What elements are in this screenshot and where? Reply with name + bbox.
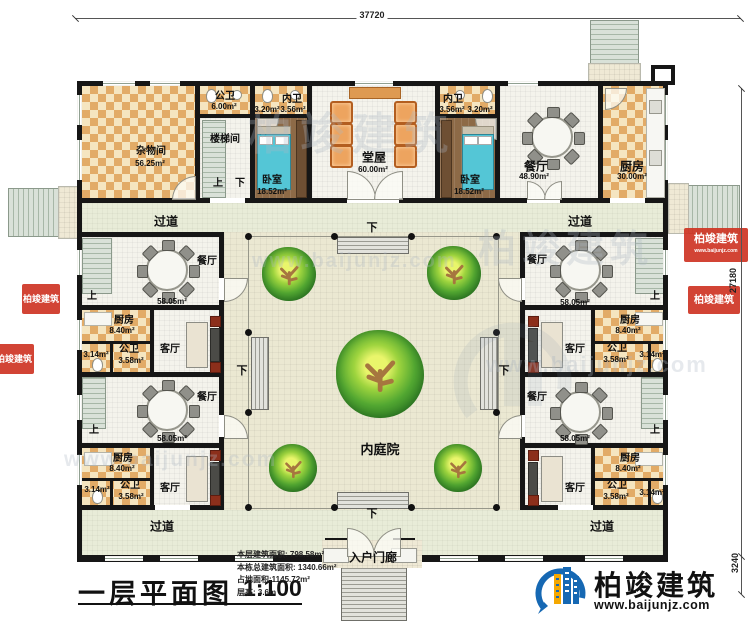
- stamp-text: 柏竣建筑: [0, 354, 32, 364]
- wall: [82, 341, 150, 344]
- dimension-right-lower-value: 3240: [730, 553, 740, 573]
- column: [245, 329, 252, 336]
- wall: [197, 114, 253, 118]
- column: [493, 329, 500, 336]
- dimension-line-top: [75, 18, 741, 19]
- stairs-ul: [82, 238, 112, 294]
- storey-height: 层高: 3.6m: [237, 587, 337, 600]
- sink-icon: [649, 100, 662, 114]
- wall: [520, 505, 558, 510]
- side-table: [210, 362, 221, 373]
- room-label: 公卫: [119, 345, 139, 356]
- wall: [219, 232, 224, 278]
- column: [493, 409, 500, 416]
- wardrobe: [296, 120, 307, 198]
- up-label: 上: [213, 179, 223, 190]
- corridor-label: 过道: [568, 216, 592, 229]
- stairs-landing-left: [58, 186, 79, 239]
- wall: [150, 448, 154, 505]
- down-label: 下: [367, 223, 378, 235]
- room-area: 56.25m²: [135, 160, 165, 168]
- column: [408, 233, 415, 240]
- room-area: 6.00m²: [211, 103, 236, 111]
- window: [663, 455, 668, 485]
- chair-icon: [330, 101, 353, 124]
- chair-icon: [550, 407, 561, 420]
- room-area: 3.14m²: [83, 351, 108, 359]
- window: [663, 320, 668, 350]
- wall: [435, 81, 440, 198]
- chair-icon: [330, 123, 353, 146]
- tv-cabinet: [528, 328, 538, 362]
- room-label: 杂物间: [136, 147, 166, 158]
- wall: [307, 81, 312, 198]
- room-area: 8.40m²: [109, 465, 134, 473]
- window: [585, 556, 623, 561]
- window: [77, 140, 82, 180]
- column: [331, 233, 338, 240]
- wall: [150, 310, 154, 372]
- room-label: 厨房: [620, 454, 640, 465]
- wall: [77, 372, 224, 377]
- room-label: 餐厅: [197, 393, 217, 404]
- wall: [399, 198, 527, 203]
- room-area: 3.56m²: [439, 106, 464, 114]
- wall: [110, 344, 113, 372]
- toilet-icon: [92, 358, 103, 372]
- corridor-label: 过道: [590, 521, 614, 534]
- window: [508, 81, 538, 86]
- window: [160, 556, 198, 561]
- window: [77, 455, 82, 485]
- column: [245, 504, 252, 511]
- sofa: [186, 322, 208, 368]
- pillow: [464, 136, 478, 145]
- up-label: 上: [650, 292, 660, 303]
- toilet-icon: [262, 89, 273, 103]
- storage-floor: [82, 86, 195, 198]
- corridor-label: 过道: [150, 521, 174, 534]
- stairs-lr: [641, 377, 665, 429]
- side-table: [528, 450, 539, 461]
- room-label: 餐厅: [197, 257, 217, 268]
- stove-icon: [649, 150, 662, 166]
- wall: [110, 481, 113, 505]
- pillow: [259, 136, 273, 145]
- courtyard-step-bottom: [337, 492, 409, 509]
- page-title: 一层平面图: [78, 572, 233, 611]
- land-area: 占地面积:1145.72m²: [237, 574, 337, 587]
- stairs-landing-top: [588, 63, 641, 83]
- room-label: 餐厅: [527, 393, 547, 404]
- wall: [520, 232, 525, 278]
- tv-cabinet: [210, 462, 220, 496]
- window: [77, 395, 82, 420]
- sofa: [186, 456, 208, 502]
- room-label: 厨房: [114, 316, 134, 327]
- tree: [269, 444, 317, 492]
- stamp-text: 柏竣建筑: [23, 294, 59, 304]
- chair-icon: [394, 145, 417, 168]
- chair-icon: [394, 123, 417, 146]
- brand-url: www.baijunjz.com: [594, 598, 710, 612]
- window: [77, 250, 82, 275]
- tree-branches-icon: [352, 346, 408, 402]
- room-area: 3.58m²: [603, 493, 628, 501]
- courtyard-step-right: [480, 337, 498, 410]
- dimension-top-value: 37720: [356, 10, 387, 20]
- room-label: 餐厅: [527, 256, 547, 267]
- total-area: 本栋总建筑面积: 1340.66m²: [237, 562, 337, 575]
- window: [150, 81, 180, 86]
- watermark-stamp: 柏竣建筑: [0, 344, 34, 374]
- room-label: 厨房: [620, 316, 640, 327]
- room-label: 公卫: [607, 481, 627, 492]
- window: [663, 395, 668, 420]
- room-area: 3.58m²: [603, 356, 628, 364]
- chair-icon: [189, 405, 200, 418]
- column: [493, 504, 500, 511]
- tree: [427, 246, 481, 300]
- up-label: 上: [87, 292, 97, 303]
- tv-cabinet: [528, 462, 538, 496]
- column: [493, 233, 500, 240]
- round-dining-table: [135, 238, 199, 302]
- kitchen-counter: [84, 312, 112, 326]
- chair-icon: [574, 132, 585, 145]
- wall: [77, 232, 224, 237]
- down-label: 下: [237, 366, 248, 378]
- room-area: 3.20m²: [467, 106, 492, 114]
- room-label: 内卫: [282, 95, 302, 106]
- room-area: 3.20m²: [254, 106, 279, 114]
- room-label: 客厅: [160, 345, 180, 356]
- toilet-icon: [482, 89, 493, 103]
- external-stairs-left: [8, 188, 60, 237]
- room-area: 3.14m²: [639, 489, 664, 497]
- chair-icon: [162, 380, 175, 391]
- external-stairs-right: [687, 185, 740, 234]
- wall: [520, 300, 525, 415]
- chair-icon: [547, 159, 560, 170]
- courtyard-step-top: [337, 237, 409, 254]
- wall: [560, 198, 610, 203]
- side-table: [528, 316, 539, 327]
- wall: [591, 448, 595, 505]
- watermark-stamp: 柏竣建筑 www.baijunjz.com: [684, 228, 748, 262]
- tree-branches-icon: [278, 453, 309, 484]
- column: [245, 233, 252, 240]
- chair-icon: [137, 265, 148, 278]
- tree: [434, 444, 482, 492]
- room-label: 公卫: [120, 481, 140, 492]
- room-label: 客厅: [160, 484, 180, 495]
- courtyard-label: 内庭院: [360, 443, 399, 457]
- column: [408, 504, 415, 511]
- room-label: 卧室: [262, 176, 282, 187]
- up-label: 上: [650, 426, 660, 437]
- wall-notch: [651, 65, 675, 85]
- window: [663, 250, 668, 275]
- room-area: 3.56m²: [280, 106, 305, 114]
- down-label: 下: [367, 509, 378, 521]
- tree-branches-icon: [272, 257, 307, 292]
- up-label: 上: [89, 426, 99, 437]
- down-label: 下: [235, 179, 245, 190]
- corridor-label: 过道: [154, 216, 178, 229]
- room-area: 30.00m²: [617, 173, 647, 181]
- stamp-url: www.baijunjz.com: [694, 245, 737, 257]
- pillow: [478, 136, 492, 145]
- room-area: 3.58m²: [118, 493, 143, 501]
- window: [77, 320, 82, 350]
- column: [245, 409, 252, 416]
- stairs-ll: [82, 377, 106, 429]
- external-stairs-top: [590, 20, 639, 65]
- tree: [262, 247, 316, 301]
- dimension-line-right: [741, 88, 742, 594]
- column: [331, 504, 338, 511]
- down-label: 下: [499, 366, 510, 378]
- round-dining-table: [135, 378, 199, 442]
- window: [103, 81, 135, 86]
- room-area: 58.05m²: [157, 298, 187, 306]
- porch-label: 入户门廊: [349, 552, 397, 565]
- room-area: 58.05m²: [157, 435, 187, 443]
- chair-icon: [575, 240, 588, 251]
- stairs-landing-right: [668, 183, 689, 234]
- chair-icon: [550, 265, 561, 278]
- round-dining-table: [548, 238, 612, 302]
- wardrobe: [441, 120, 452, 198]
- room-area: 48.90m²: [519, 173, 549, 181]
- watermark-stamp: 柏竣建筑: [22, 284, 60, 314]
- toilet-icon: [652, 358, 663, 372]
- altar-table: [349, 87, 401, 99]
- chair-icon: [522, 132, 533, 145]
- wall: [245, 198, 347, 203]
- chair-icon: [394, 101, 417, 124]
- floor-plan-canvas: 杂物间 56.25m² 公卫 6.00m² 楼梯间 上 下 内卫 3.20m² …: [0, 0, 750, 627]
- chair-icon: [137, 405, 148, 418]
- chair-icon: [602, 265, 613, 278]
- chair-icon: [162, 240, 175, 251]
- room-area: 18.52m²: [257, 188, 287, 196]
- side-table: [210, 450, 221, 461]
- title-underline: [78, 603, 302, 605]
- side-table: [210, 316, 221, 327]
- room-area: 8.40m²: [615, 465, 640, 473]
- sofa: [541, 322, 563, 368]
- side-table: [528, 362, 539, 373]
- room-area: 60.00m²: [358, 166, 388, 174]
- room-area: 3.14m²: [84, 486, 109, 494]
- wall: [77, 505, 155, 510]
- wall: [598, 81, 603, 198]
- chair-icon: [575, 382, 588, 393]
- dimension-right-value: 27180: [728, 268, 738, 293]
- stamp-text: 柏竣建筑: [694, 295, 734, 306]
- side-table: [528, 495, 539, 506]
- wall: [593, 505, 668, 510]
- wall: [250, 81, 255, 198]
- room-label: 楼梯间: [210, 135, 240, 146]
- chair-icon: [602, 407, 613, 420]
- window: [77, 95, 82, 125]
- room-area: 3.58m²: [118, 357, 143, 365]
- room-label: 公卫: [215, 92, 235, 103]
- stamp-text: 柏竣建筑: [694, 233, 738, 245]
- tree: [336, 330, 424, 418]
- window: [440, 556, 478, 561]
- chair-icon: [330, 145, 353, 168]
- room-label: 公卫: [607, 344, 627, 355]
- sofa: [541, 456, 563, 502]
- stairs-ur: [635, 238, 665, 294]
- tv-cabinet: [210, 328, 220, 362]
- room-area: 58.05m²: [560, 435, 590, 443]
- pillow: [275, 136, 289, 145]
- kitchen-counter: [84, 452, 112, 466]
- room-area: 8.40m²: [615, 327, 640, 335]
- entry-steps: [341, 567, 407, 621]
- window: [105, 556, 143, 561]
- window: [355, 81, 393, 86]
- wall: [595, 341, 663, 344]
- tree-branches-icon: [437, 256, 472, 291]
- room-label: 卧室: [460, 176, 480, 187]
- room-area: 8.40m²: [109, 327, 134, 335]
- wall: [520, 232, 668, 237]
- tree-branches-icon: [443, 453, 474, 484]
- area-info-block: 本层建筑面积: 798.58m² 本栋总建筑面积: 1340.66m² 占地面积…: [237, 549, 337, 599]
- room-label: 厨房: [113, 454, 133, 465]
- brand-logo-icon: [534, 558, 590, 618]
- room-label: 内卫: [443, 95, 463, 106]
- wall: [520, 372, 668, 377]
- room-label: 客厅: [565, 345, 585, 356]
- room-label: 堂屋: [362, 152, 386, 165]
- wall: [595, 478, 663, 481]
- floor-area: 本层建筑面积: 798.58m²: [237, 549, 337, 562]
- room-area: 3.14m²: [639, 351, 664, 359]
- room-area: 18.52m²: [454, 188, 484, 196]
- side-table: [210, 495, 221, 506]
- room-label: 客厅: [565, 484, 585, 495]
- chair-icon: [547, 107, 560, 118]
- courtyard-step-left: [251, 337, 269, 410]
- wall: [645, 198, 668, 203]
- room-area: 58.05m²: [560, 299, 590, 307]
